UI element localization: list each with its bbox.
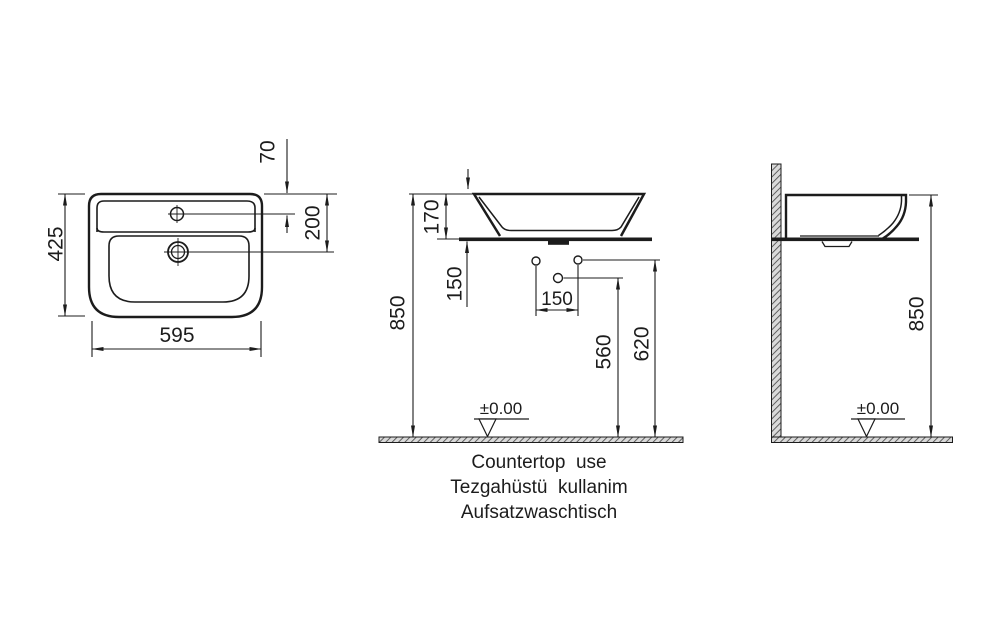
drain-fitting-front <box>548 241 569 245</box>
top-view <box>58 139 337 357</box>
wall-section <box>772 164 782 438</box>
dim-drain-height-label: 560 <box>593 334 616 369</box>
drawing-canvas: 425 595 70 200 <box>0 0 1000 642</box>
drain-connection-hole <box>554 274 563 283</box>
supply-hole-left <box>532 257 540 265</box>
dim-hole-spacing-label: 150 <box>541 289 573 310</box>
front-view-labels: 850 170 150 150 560 620 ±0.00 Countertop… <box>387 199 654 523</box>
caption-line-de: Aufsatzwaschtisch <box>461 502 617 523</box>
dim-basin-height-label: 170 <box>421 199 444 234</box>
datum-triangle-front <box>479 419 496 437</box>
dim-rim-height-label-side: 850 <box>906 296 929 331</box>
side-view-labels: 850 ±0.00 <box>857 296 929 418</box>
caption-line-en: Countertop use <box>471 452 606 473</box>
dim-depth-label: 425 <box>45 226 68 261</box>
dim-rim-height-label-front: 850 <box>387 295 410 330</box>
datum-label-side: ±0.00 <box>857 399 899 418</box>
dim-hole-drop-label: 150 <box>444 266 467 301</box>
supply-hole-right <box>574 256 582 264</box>
datum-triangle-side <box>858 419 875 437</box>
datum-label-front: ±0.00 <box>480 399 522 418</box>
dim-tap-offset-label: 70 <box>257 140 280 163</box>
countertop-side <box>772 238 919 242</box>
countertop-front <box>459 238 652 242</box>
drain-fitting-side <box>822 242 852 247</box>
caption-line-tr: Tezgahüstü kullanim <box>450 477 627 498</box>
basin-side-outline <box>786 195 906 239</box>
dim-supply-height-label: 620 <box>631 326 654 361</box>
technical-drawing: 425 595 70 200 <box>0 0 1000 642</box>
floor-side <box>772 437 953 443</box>
dim-width-label: 595 <box>159 324 194 347</box>
dim-drain-offset-label: 200 <box>302 205 325 240</box>
floor-front <box>379 437 683 443</box>
